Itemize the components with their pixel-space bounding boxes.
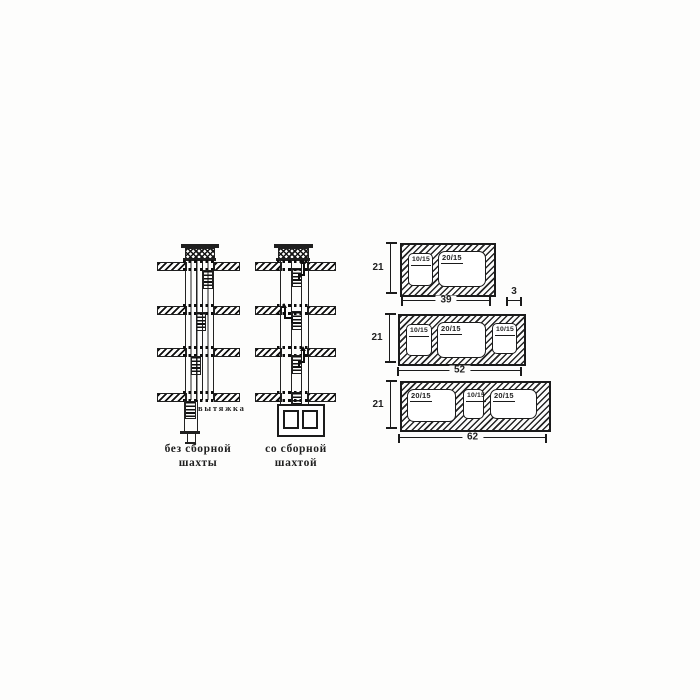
dim-width: 52 xyxy=(398,370,521,371)
floor-slab xyxy=(307,306,336,315)
dim-height xyxy=(390,243,391,293)
channel-joints xyxy=(183,260,216,263)
block-body: 10/15 20/15 10/15 xyxy=(398,314,526,366)
block-opening: 10/15 xyxy=(408,253,433,286)
caption-line: со сборной xyxy=(254,443,338,457)
opening-size-label: 20/15 xyxy=(410,391,432,402)
channel-joints xyxy=(183,304,216,307)
dim-width-value: 52 xyxy=(449,366,470,376)
caption-line: шахты xyxy=(152,457,244,471)
diagram-caption-left: без сборной шахты xyxy=(152,443,244,470)
opening-size-label: 20/15 xyxy=(440,324,462,335)
base-block-cell xyxy=(302,410,318,429)
opening-size-label: 10/15 xyxy=(411,255,431,266)
floor-slab xyxy=(307,393,336,402)
floor-slab xyxy=(214,393,240,402)
block-opening: 20/15 xyxy=(437,322,486,358)
damper-register xyxy=(196,312,206,331)
opening-size-label: 10/15 xyxy=(409,326,429,337)
channel-joints xyxy=(183,346,216,349)
floor-slab xyxy=(307,262,336,271)
damper-register xyxy=(185,401,196,419)
base-vent-block xyxy=(277,404,325,437)
floor-slab xyxy=(214,262,240,271)
dim-height-value: 21 xyxy=(371,263,385,273)
dim-height-value: 21 xyxy=(370,333,384,343)
diagram-caption-right: со сборной шахтой xyxy=(254,443,338,470)
block-opening: 10/15 xyxy=(463,389,484,419)
opening-size-label: 10/15 xyxy=(495,325,515,336)
exhaust-label: вытяжка xyxy=(198,403,246,413)
channel-joints xyxy=(183,391,216,394)
opening-size-label: 10/15 xyxy=(466,391,486,402)
block-opening: 10/15 xyxy=(406,324,432,356)
floor-slab xyxy=(214,306,240,315)
dim-height xyxy=(389,314,390,362)
dim-height xyxy=(390,381,391,428)
damper-register xyxy=(292,268,302,287)
exhaust-tube-stub xyxy=(187,434,196,442)
damper-register xyxy=(203,270,213,289)
dim-width: 39 xyxy=(402,300,490,301)
dim-height-value: 21 xyxy=(371,400,385,410)
dim-width-value: 39 xyxy=(435,296,456,306)
dim-wall-thickness xyxy=(507,300,521,301)
block-opening: 20/15 xyxy=(438,251,486,287)
opening-size-label: 20/15 xyxy=(441,253,463,264)
dim-wall-value: 3 xyxy=(508,287,520,297)
caption-line: шахтой xyxy=(254,457,338,471)
floor-slab xyxy=(307,348,336,357)
block-opening: 10/15 xyxy=(492,323,517,354)
block-body: 20/15 10/15 20/15 xyxy=(400,381,551,432)
opening-size-label: 20/15 xyxy=(493,391,515,402)
dim-width: 62 xyxy=(399,437,546,438)
damper-register xyxy=(191,356,201,375)
damper-register xyxy=(292,311,302,330)
block-opening: 20/15 xyxy=(490,389,537,419)
caption-line: без сборной xyxy=(152,443,244,457)
scanned-figure: вытяжка без сборной шахты xyxy=(0,0,700,700)
floor-slab xyxy=(214,348,240,357)
block-opening: 20/15 xyxy=(407,389,456,422)
base-block-cell xyxy=(283,410,299,429)
block-body: 10/15 20/15 xyxy=(400,243,496,297)
damper-register xyxy=(292,355,302,374)
dim-width-value: 62 xyxy=(462,433,483,443)
